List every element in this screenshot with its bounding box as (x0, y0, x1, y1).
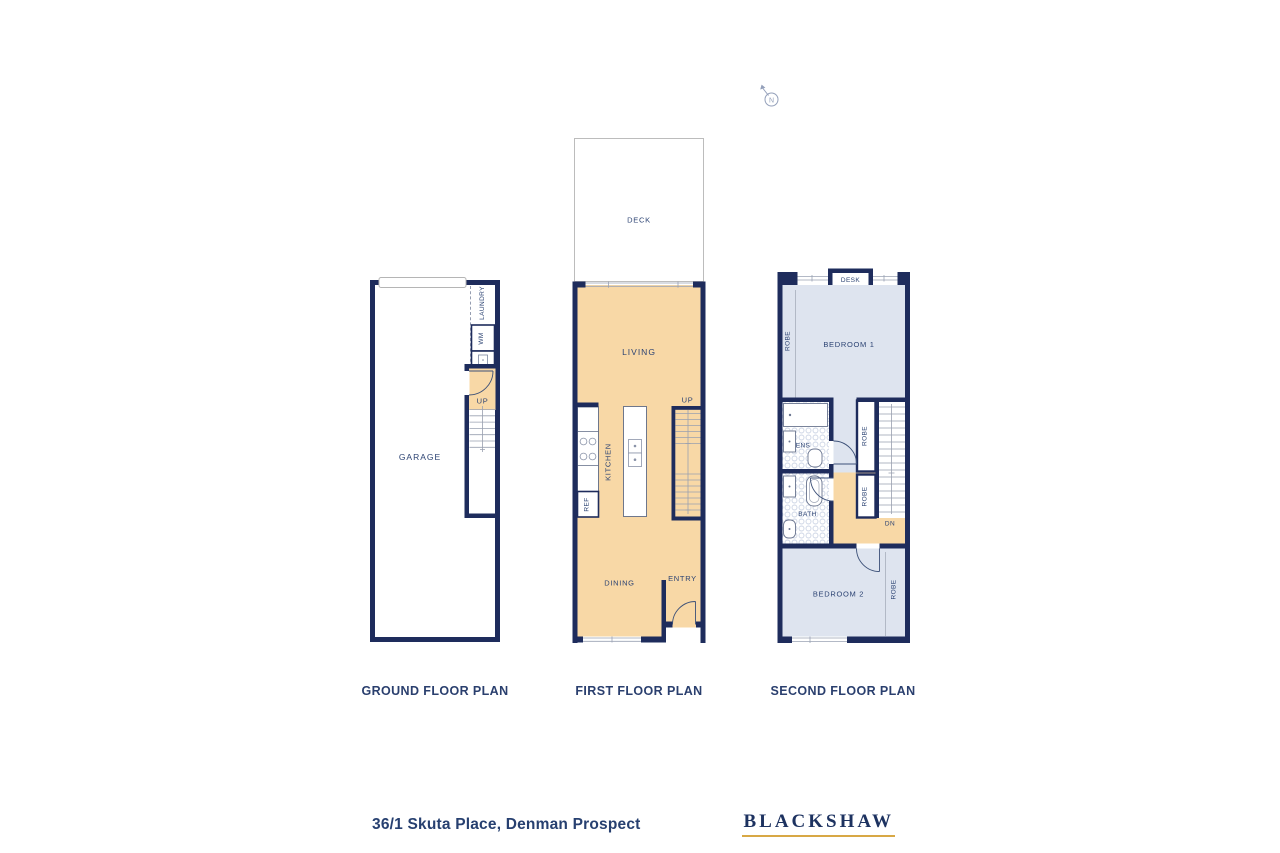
ground-floor-plan: GARAGE LAUNDRY WM UP (373, 278, 498, 640)
ground-landing-top-wall (465, 364, 498, 369)
robe-bed2-label: ROBE (891, 579, 898, 599)
robe-hall-upper-label: ROBE (862, 426, 869, 446)
first-up-label: UP (682, 396, 694, 405)
robe-hall-lower-label: ROBE (862, 486, 869, 506)
blackshaw-logo: BLACKSHAW (742, 811, 895, 837)
second-stair-wall (876, 401, 880, 519)
desk-label: DESK (841, 277, 861, 284)
living-label: LIVING (622, 347, 656, 357)
compass-north-label: N (769, 97, 774, 104)
ens-label: ENS (796, 443, 811, 450)
ground-stair-bottom-wall (465, 514, 498, 519)
garage-door (379, 278, 466, 288)
first-stair-wall (672, 406, 676, 521)
robe1-label: ROBE (785, 331, 792, 351)
ref-label: REF (584, 497, 591, 511)
bedroom2-label: BEDROOM 2 (813, 590, 864, 599)
second-floor-plan: DESK BEDROOM 1 ROBE ENS ROBE ROBE BATH D… (778, 269, 911, 644)
first-floor-title: FIRST FLOOR PLAN (549, 684, 729, 702)
ground-floor-title: GROUND FLOOR PLAN (345, 684, 525, 702)
first-left-wall (573, 282, 578, 644)
ens-bath-wall (783, 469, 834, 474)
ground-up-label: UP (477, 397, 489, 406)
bedroom1-label: BEDROOM 1 (823, 340, 874, 349)
wm-label: WM (478, 332, 485, 344)
second-floor-title: SECOND FLOOR PLAN (753, 684, 933, 702)
first-right-wall (701, 282, 706, 644)
second-left-wall (778, 272, 783, 643)
deck-label: DECK (627, 216, 651, 225)
bedroom2-wall (778, 544, 857, 549)
laundry-label: LAUNDRY (479, 286, 486, 320)
dining-label: DINING (604, 579, 634, 588)
deck-area (575, 139, 704, 282)
floorplan-page: N GARAGE LAUNDRY WM UP (0, 0, 1280, 853)
bath-label: BATH (798, 511, 816, 518)
north-compass-icon: N (760, 85, 778, 106)
second-stair-treads (879, 407, 905, 512)
floorplan-canvas: N GARAGE LAUNDRY WM UP (0, 0, 1280, 853)
bedroom1-wall (778, 398, 834, 403)
entry-label: ENTRY (668, 574, 697, 583)
dn-label: DN (885, 521, 895, 528)
kitchen-label: KITCHEN (604, 443, 613, 481)
entry-porch (666, 628, 701, 644)
entry-wall (662, 580, 667, 643)
sink (629, 440, 642, 467)
second-right-wall (905, 272, 910, 643)
property-address: 36/1 Skuta Place, Denman Prospect (372, 816, 641, 834)
garage-label: GARAGE (399, 452, 441, 462)
first-floor-plan: DECK LIVING KITCHEN REF UP DINING ENTRY (573, 139, 706, 644)
